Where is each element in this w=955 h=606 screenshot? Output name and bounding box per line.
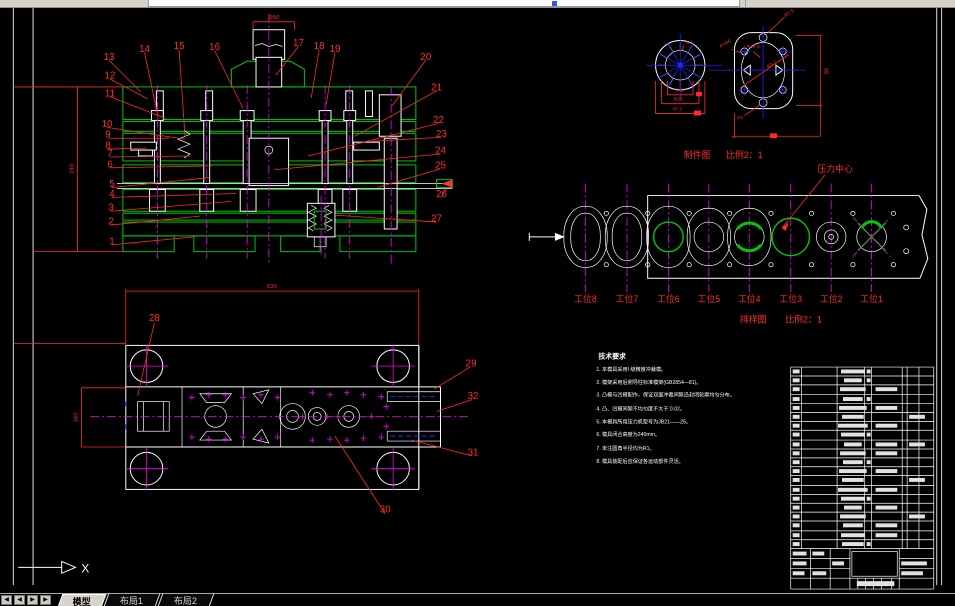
balloon-label-23: 23 [436, 129, 447, 140]
plan-dimensions: 630 160 [14, 284, 418, 447]
section-height-dim: 240 [70, 163, 76, 174]
tab-nav-next-icon[interactable]: ▶ [27, 595, 38, 605]
strip-outline [648, 195, 928, 278]
part-view-title: 制件图 [684, 149, 711, 160]
tech-notes: 技术要求 1. 本模具采用I 级精度冲裁模。 2. 模架采用后侧导柱标准模架(G… [596, 352, 735, 465]
tab-layout1-label: 布局1 [120, 594, 143, 606]
tab-nav-first-icon[interactable]: ◀ [1, 595, 12, 605]
balloon-label-16: 16 [209, 42, 220, 53]
balloon-label-2: 2 [108, 217, 113, 228]
plan-view: 28 29 30 31 32 630 160 [14, 284, 478, 515]
balloon-label-21: 21 [431, 82, 442, 93]
balloon-label-8: 8 [105, 141, 111, 152]
balloon-label-17: 17 [293, 38, 304, 49]
layout-tab-bar: ◀ ◀ ▶ ▶ 模型 布局1 布局2 [0, 593, 955, 606]
balloon-label-24: 24 [435, 146, 446, 157]
balloon-label-20: 20 [420, 52, 431, 63]
note-line-3: 3. 凸模与凹模配作，保证双面冲裁间隙沿封闭轮廓均匀分布。 [596, 392, 735, 399]
note-line-8: 8. 模具装配后应保证各运动部件灵活。 [596, 458, 683, 465]
balloon-label-31: 31 [468, 447, 479, 458]
station-label-3: 工位3 [779, 293, 802, 304]
toolbar-icon[interactable] [552, 1, 557, 6]
tab-model[interactable]: 模型 [58, 594, 107, 606]
balloon-label-27: 27 [431, 214, 442, 225]
plan-side-dim: 160 [73, 412, 79, 423]
tab-nav-prev-icon[interactable]: ◀ [14, 595, 25, 605]
balloon-label-13: 13 [104, 52, 115, 63]
bom-table [791, 367, 934, 589]
balloon-label-6: 6 [107, 159, 113, 170]
tab-nav-last-icon[interactable]: ▶ [40, 595, 51, 605]
pressure-center-label: 压力中心 [817, 163, 853, 174]
station-label-7: 工位7 [616, 293, 639, 304]
tab-layout2[interactable]: 布局2 [158, 594, 214, 606]
ucs-x-label: X [81, 561, 89, 575]
sheet-border [13, 8, 941, 585]
dim-d2: R26 [674, 97, 683, 103]
balloon-label-28: 28 [149, 313, 160, 324]
plan-width-dim: 630 [267, 284, 278, 290]
balloon-label-12: 12 [105, 71, 116, 82]
dim-r-corner: R2.5 [783, 8, 795, 19]
tab-layout2-label: 布局2 [174, 594, 197, 606]
dim-holes: 4×Φ6 [719, 38, 733, 49]
balloon-label-3: 3 [108, 203, 114, 214]
note-line-5: 5. 本模具所用压力机型号为JB21——25。 [596, 418, 691, 425]
ucs-icon: X [18, 561, 89, 575]
note-line-6: 6. 模具闭合高度为240mm。 [596, 431, 660, 438]
tab-model-label: 模型 [73, 595, 91, 606]
toolbar-sliver [0, 0, 955, 8]
strip-layout: 压力中心 工位8 工位7 工位6 工位5 工位4 工位3 工位2 工位1 排样图… [529, 163, 928, 325]
dim-r-top: R14.5 [747, 44, 760, 50]
station-label-4: 工位4 [738, 293, 761, 304]
strip-station-labels: 工位8 工位7 工位6 工位5 工位4 工位3 工位2 工位1 [574, 293, 883, 304]
dim-d3: 47.2 [672, 107, 682, 113]
title-block [791, 549, 934, 589]
station-label-5: 工位5 [698, 293, 721, 304]
balloon-label-29: 29 [466, 359, 477, 370]
station-label-6: 工位6 [657, 293, 680, 304]
toolbar-separator [745, 0, 746, 8]
toolbar-field [148, 0, 740, 7]
strip-title: 排样图 [740, 314, 767, 325]
balloon-label-4: 4 [109, 189, 115, 200]
dim-height: 56 [822, 68, 828, 75]
autocad-window: 1 2 3 4 5 6 7 8 9 10 11 12 13 14 15 16 1… [0, 0, 955, 606]
balloon-label-26: 26 [436, 189, 447, 200]
tab-layout1[interactable]: 布局1 [104, 594, 160, 606]
shank-dim-text: Φ50 [268, 15, 280, 21]
balloon-label-15: 15 [174, 41, 185, 52]
dim-top: Φ4 [686, 40, 693, 46]
balloon-label-1: 1 [109, 236, 114, 247]
plan-centerlines [90, 344, 470, 490]
balloon-label-10: 10 [102, 119, 113, 130]
part-view-scale: 比例2：1 [726, 149, 763, 160]
strip-scale: 比例2：1 [785, 314, 822, 325]
balloon-label-22: 22 [433, 115, 444, 126]
note-line-2: 2. 模架采用后侧导柱标准模架(GB2854—81)。 [596, 379, 701, 386]
dim-r-bottom: R1 [737, 115, 744, 121]
note-line-7: 7. 未注圆角半径均为R1。 [596, 445, 654, 452]
balloon-label-14: 14 [139, 44, 150, 55]
note-line-1: 1. 本模具采用I 级精度冲裁模。 [596, 366, 666, 373]
title-block-text [793, 552, 927, 587]
drawing-canvas[interactable]: 1 2 3 4 5 6 7 8 9 10 11 12 13 14 15 16 1… [0, 8, 955, 593]
station-label-1: 工位1 [860, 293, 883, 304]
balloon-label-18: 18 [314, 41, 325, 52]
notes-title: 技术要求 [598, 352, 626, 361]
balloon-label-5: 5 [109, 179, 115, 190]
station-label-8: 工位8 [574, 293, 597, 304]
balloon-label-11: 11 [105, 88, 115, 99]
balloon-label-25: 25 [435, 160, 446, 171]
part-view-obround: 56 R2.5 R14.5 4×Φ6 Φ4.2 R1 [709, 8, 828, 138]
part-view-round: Φ4 Φ32 R26 47.2 [646, 34, 723, 116]
balloon-label-30: 30 [380, 505, 391, 516]
section-view: 1 2 3 4 5 6 7 8 9 10 11 12 13 14 15 16 1… [14, 14, 452, 265]
pressure-center-leader [782, 175, 825, 228]
note-line-4: 4. 凸、凹模间隙不均匀度不大于 0.02。 [596, 406, 685, 413]
strip-feed-arrow [529, 233, 565, 241]
balloon-label-19: 19 [329, 44, 340, 55]
balloon-label-9: 9 [105, 130, 111, 141]
part-views: Φ4 Φ32 R26 47.2 56 R2.5 R14.5 [646, 8, 829, 160]
balloon-label-32: 32 [468, 391, 479, 402]
station-label-2: 工位2 [820, 293, 843, 304]
dim-d1: Φ32 [676, 87, 686, 93]
